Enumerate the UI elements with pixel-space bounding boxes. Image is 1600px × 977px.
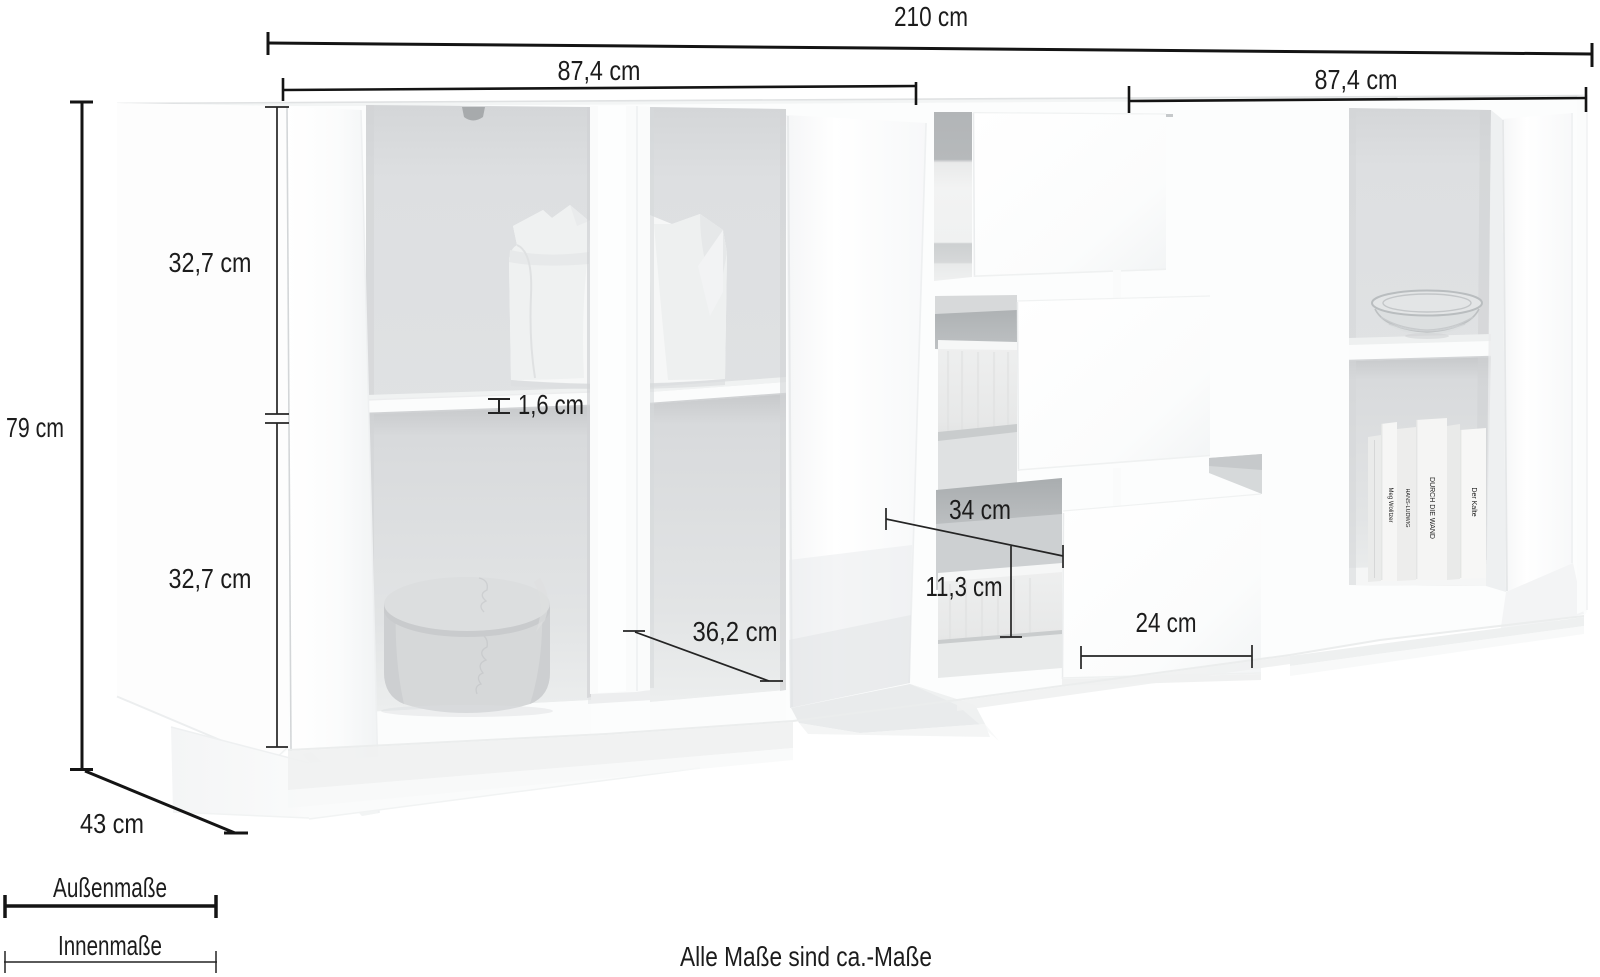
svg-text:1,6 cm: 1,6 cm bbox=[518, 389, 584, 420]
svg-text:87,4 cm: 87,4 cm bbox=[1315, 64, 1398, 95]
svg-text:34 cm: 34 cm bbox=[949, 494, 1011, 525]
svg-text:Meg Wolitzer: Meg Wolitzer bbox=[1387, 488, 1393, 523]
svg-text:Innenmaße: Innenmaße bbox=[58, 930, 162, 961]
svg-text:87,4 cm: 87,4 cm bbox=[558, 55, 641, 86]
svg-text:DURCH DIE WAND: DURCH DIE WAND bbox=[1428, 477, 1435, 539]
svg-text:Außenmaße: Außenmaße bbox=[53, 872, 167, 903]
svg-text:210 cm: 210 cm bbox=[894, 1, 968, 32]
svg-text:79 cm: 79 cm bbox=[6, 412, 64, 443]
svg-text:32,7 cm: 32,7 cm bbox=[169, 247, 252, 278]
svg-text:HANS-LUDWIG: HANS-LUDWIG bbox=[1404, 488, 1410, 527]
svg-text:Der Kalte: Der Kalte bbox=[1470, 487, 1477, 516]
svg-text:36,2 cm: 36,2 cm bbox=[693, 616, 778, 647]
svg-text:Alle Maße sind ca.-Maße: Alle Maße sind ca.-Maße bbox=[680, 941, 932, 972]
svg-text:32,7 cm: 32,7 cm bbox=[169, 563, 252, 594]
svg-text:11,3 cm: 11,3 cm bbox=[926, 571, 1003, 602]
svg-text:43 cm: 43 cm bbox=[80, 808, 144, 839]
svg-text:24 cm: 24 cm bbox=[1136, 607, 1197, 638]
